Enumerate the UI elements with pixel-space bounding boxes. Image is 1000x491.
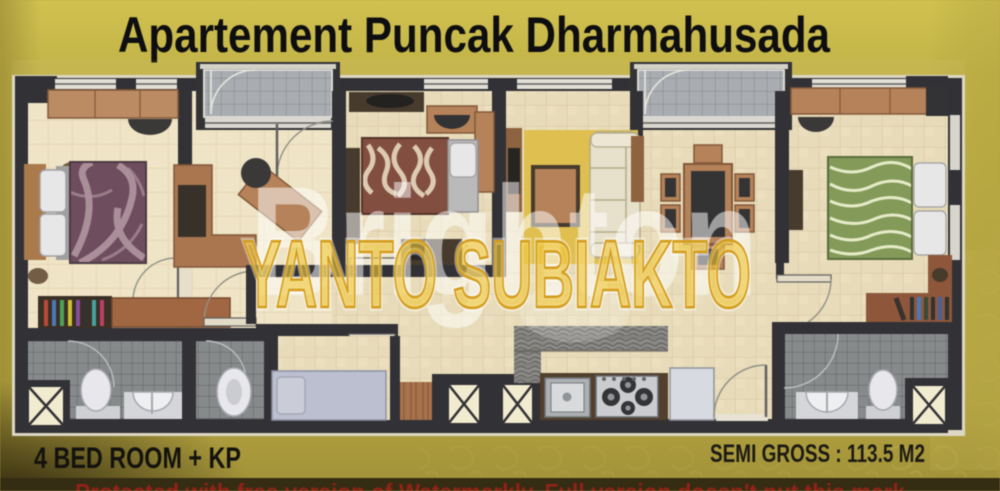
svg-text:SEMI GROSS : 113.5 M2: SEMI GROSS : 113.5 M2 (710, 440, 925, 468)
svg-text:Apartement Puncak Dharmahusada: Apartement Puncak Dharmahusada (118, 7, 831, 63)
svg-text:YANTO SUBIAKTO: YANTO SUBIAKTO (243, 221, 751, 328)
svg-text:Protected with free version of: Protected with free version of Watermark… (75, 479, 905, 491)
svg-text:4 BED ROOM + KP: 4 BED ROOM + KP (34, 442, 241, 475)
